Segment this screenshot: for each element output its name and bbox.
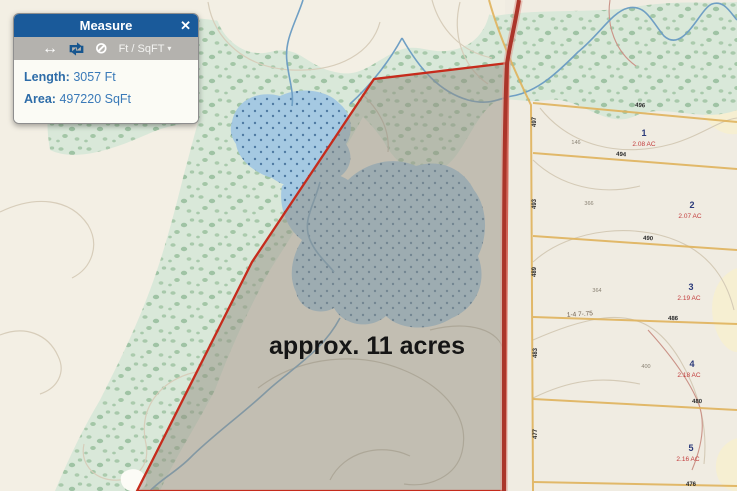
svg-text:146: 146 (571, 140, 580, 146)
map-application-window: 1 2.08 AC 2 2.07 AC 3 2.19 AC 4 2.18 AC … (0, 0, 737, 491)
svg-text:477: 477 (533, 428, 539, 439)
units-dropdown-label: Ft / SqFT (119, 43, 165, 55)
svg-text:497: 497 (532, 116, 538, 127)
parcel-acreage: 2.16 AC (676, 456, 699, 463)
area-label: Area: (24, 92, 56, 106)
close-icon[interactable]: ✕ (180, 17, 191, 34)
no-symbol-icon: ⊘ (95, 41, 108, 56)
measure-panel: Measure ✕ ↔ ⊘ Ft / SqFT ▾ (13, 13, 199, 124)
parcel-acreage: 2.07 AC (678, 213, 701, 220)
svg-text:490: 490 (643, 236, 654, 243)
svg-text:400: 400 (641, 364, 650, 370)
svg-text:489: 489 (532, 266, 538, 277)
area-result-row: Area: 497220 SqFt (24, 92, 188, 106)
parcel-acreage: 2.08 AC (632, 141, 655, 148)
svg-text:496: 496 (635, 103, 646, 110)
chevron-down-icon: ▾ (167, 44, 171, 53)
svg-text:493: 493 (532, 198, 538, 209)
parcel-number: 4 (689, 359, 694, 369)
measure-results: Length: 3057 Ft Area: 497220 SqFt (14, 60, 198, 123)
measure-distance-button[interactable]: ↔ (42, 42, 58, 56)
clear-measurement-button[interactable]: ⊘ (95, 41, 108, 56)
svg-text:476: 476 (686, 482, 697, 488)
measure-panel-header[interactable]: Measure ✕ (14, 14, 198, 37)
polygon-loop-icon (67, 41, 86, 57)
length-label: Length: (24, 70, 70, 84)
measure-panel-title: Measure (80, 18, 133, 33)
measure-toolbar: ↔ ⊘ Ft / SqFT ▾ (14, 37, 198, 60)
area-value: 497220 SqFt (59, 92, 131, 106)
parcel-acreage: 2.18 AC (677, 372, 700, 379)
svg-text:364: 364 (592, 288, 601, 294)
parcel-number: 3 (688, 282, 693, 292)
parcel-acreage: 2.19 AC (677, 295, 700, 302)
area-annotation: approx. 11 acres (252, 332, 482, 361)
svg-text:483: 483 (533, 347, 539, 358)
parcel-number: 5 (688, 443, 693, 453)
svg-text:366: 366 (584, 201, 593, 207)
left-right-arrow-icon: ↔ (42, 42, 58, 56)
units-dropdown[interactable]: Ft / SqFT ▾ (119, 43, 172, 55)
svg-text:486: 486 (668, 316, 679, 322)
length-result-row: Length: 3057 Ft (24, 70, 188, 84)
length-value: 3057 Ft (73, 70, 115, 84)
svg-text:494: 494 (616, 152, 627, 159)
parcel-number: 1 (641, 128, 646, 138)
parcel-number: 2 (689, 200, 694, 210)
measure-area-button[interactable] (67, 41, 86, 57)
svg-text:480: 480 (692, 399, 703, 405)
